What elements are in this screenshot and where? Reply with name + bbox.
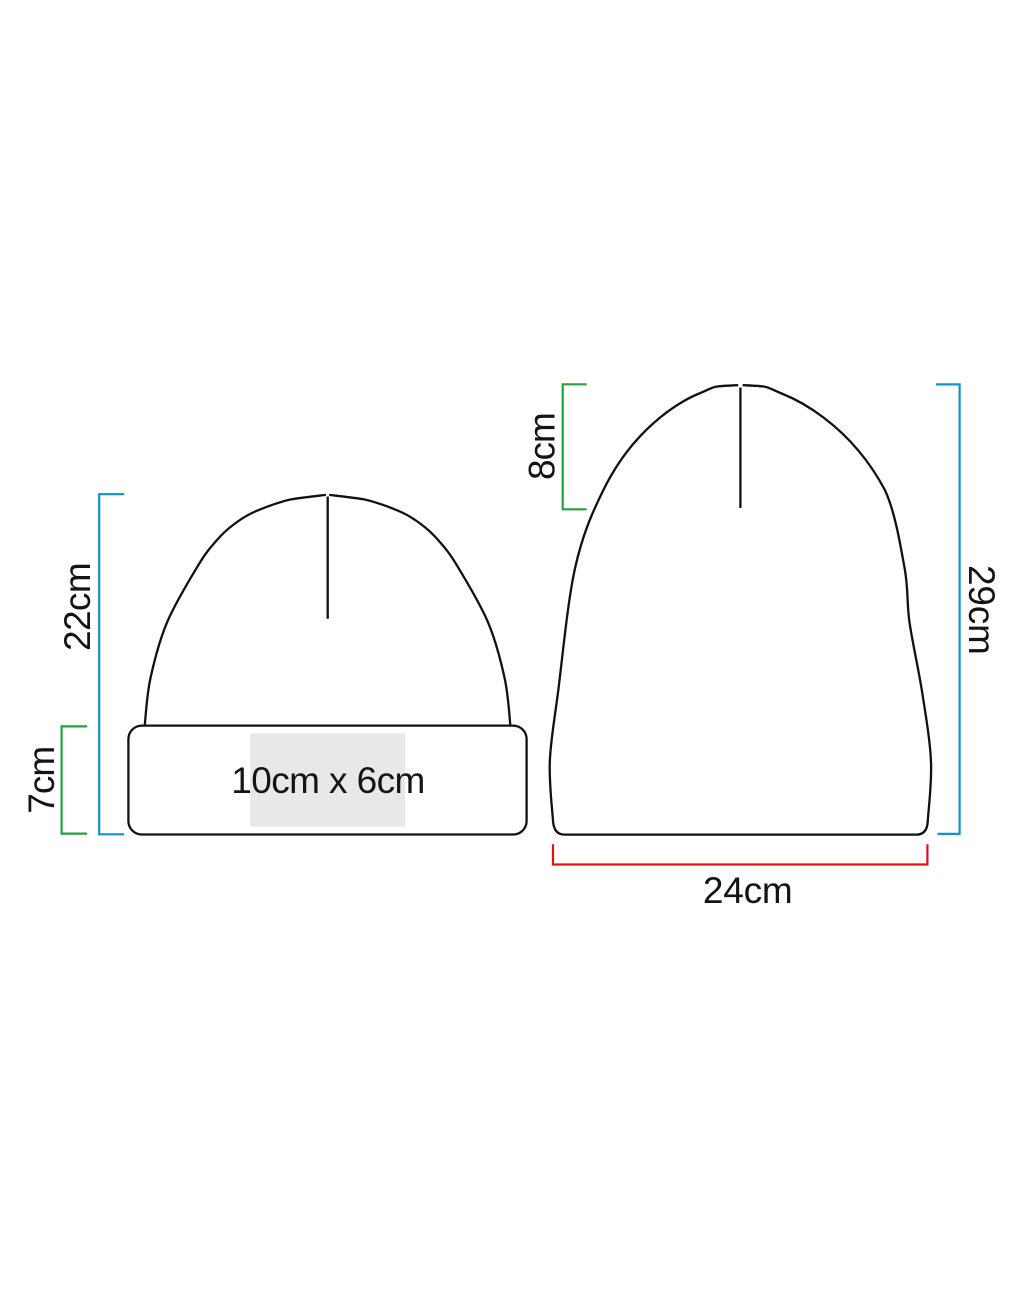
svg-text:24cm: 24cm [703,870,793,911]
svg-text:22cm: 22cm [57,563,98,651]
svg-text:10cm x 6cm: 10cm x 6cm [231,760,424,801]
svg-text:29cm: 29cm [961,565,1002,655]
svg-text:7cm: 7cm [21,747,62,814]
svg-text:8cm: 8cm [522,413,563,480]
